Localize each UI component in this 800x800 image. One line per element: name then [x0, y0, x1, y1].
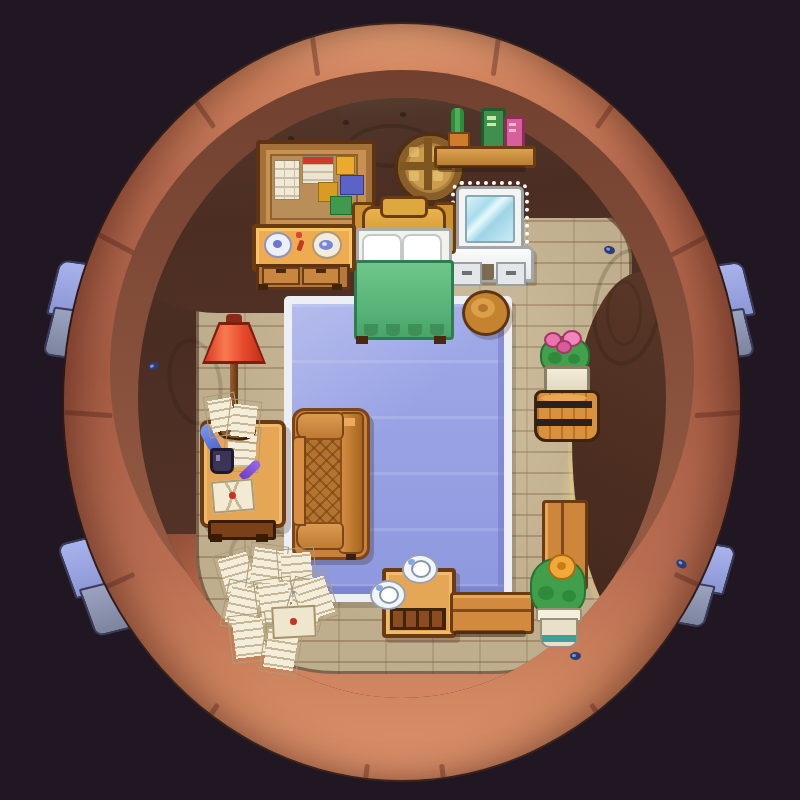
bug-glint: [150, 364, 155, 368]
dresser-foot: [332, 284, 342, 290]
rim-segment-line: [491, 28, 503, 76]
ink-glint: [216, 455, 220, 461]
vanity-mirror-frame: [456, 186, 524, 254]
stool[interactable]: [462, 290, 510, 336]
dresser-drawer: [302, 267, 340, 285]
stool-center: [478, 304, 488, 312]
teacup: [402, 554, 438, 584]
tea-table[interactable]: [382, 568, 448, 654]
bloom-center: [557, 562, 566, 570]
trinket-bowl: [312, 231, 342, 259]
rim-segment-line: [309, 28, 321, 76]
wreath-center: [273, 240, 282, 248]
bench-horizontal[interactable]: [450, 592, 530, 638]
leaf-shade: [562, 590, 576, 602]
bed-foot: [434, 336, 446, 344]
pot-teal-band: [542, 635, 576, 642]
blanket-scallop: [408, 324, 422, 336]
rim-segment-line: [670, 231, 715, 258]
cup-blue-glint: [376, 585, 383, 591]
barrel-planter[interactable]: [532, 332, 596, 436]
rivet-dot: [343, 120, 349, 125]
sticky-note-blue: [340, 175, 364, 195]
bench-seat: [450, 592, 534, 634]
barrel-hoop: [536, 419, 592, 426]
window-pane-glint: [409, 171, 419, 181]
barrel-hoop: [536, 401, 592, 408]
rim-segment-line: [185, 87, 217, 129]
bug-glint: [572, 654, 576, 657]
blanket-scallop: [430, 324, 444, 336]
wreath-plate: [264, 232, 292, 258]
lamp-shade: [205, 325, 263, 361]
shelf-board: [434, 146, 536, 168]
barrel: [534, 390, 600, 442]
cactus: [451, 108, 464, 133]
leaf-shade: [538, 586, 554, 600]
pinned-memo: [302, 156, 334, 184]
drawer-handle: [506, 271, 516, 275]
bug-glint: [606, 247, 611, 251]
wax-seal: [290, 618, 297, 625]
rim-segment-line: [595, 87, 627, 129]
book-stripe: [509, 123, 516, 126]
desk-foot: [256, 534, 268, 542]
yellow-plant[interactable]: [528, 552, 584, 648]
rim-segment-line: [359, 764, 370, 782]
drawer-handle: [462, 271, 472, 275]
vanity-mirror-glass: [465, 195, 515, 243]
red-trinket: [296, 232, 302, 238]
leaf-shade: [568, 354, 580, 364]
envelope: [271, 605, 317, 639]
bowl-glint: [322, 242, 327, 246]
bed-foot: [356, 336, 368, 344]
book-label: [487, 123, 496, 126]
book-stripe: [509, 129, 516, 132]
memo-red-header: [303, 157, 333, 164]
wax-seal: [229, 492, 237, 500]
sticky-note-yellow: [336, 156, 355, 175]
drawer-handle: [316, 269, 326, 273]
pinned-calendar: [274, 160, 300, 200]
bug-glint: [678, 561, 683, 566]
desk-foot: [210, 534, 222, 542]
letters-pile[interactable]: [214, 544, 348, 666]
rim-segment-line: [189, 703, 220, 746]
blanket-scallop: [386, 324, 400, 336]
bug[interactable]: [570, 652, 581, 660]
book-label: [487, 116, 496, 120]
white-pot: [540, 618, 578, 648]
armchair-front-lip: [292, 436, 306, 526]
back-glint: [343, 418, 355, 426]
teacup: [370, 580, 406, 610]
drawer-handle: [276, 269, 286, 273]
scene: [0, 0, 800, 800]
vanity-drawer: [496, 262, 526, 286]
wood-grain: [606, 280, 642, 346]
dresser[interactable]: [252, 224, 348, 290]
vanity-drawer: [452, 262, 482, 286]
headboard-knob: [380, 196, 428, 218]
leaf-shade: [548, 352, 562, 364]
vanity-kneehole: [480, 264, 494, 280]
rim-segment-line: [64, 410, 112, 418]
letter-sheet: [226, 398, 263, 444]
rim-segment-line: [589, 703, 620, 746]
shelf-shadow: [438, 166, 526, 172]
bed[interactable]: [350, 194, 452, 344]
ink-bottle: [210, 448, 234, 474]
tea-table-drawer: [390, 608, 446, 630]
rivet-dot: [400, 112, 406, 117]
vanity[interactable]: [446, 184, 528, 284]
cup-blue-glint: [408, 559, 415, 565]
armchair[interactable]: [292, 404, 366, 562]
wall-shelf[interactable]: [428, 104, 538, 174]
yellow-bloom: [548, 554, 576, 580]
rim-segment-line: [694, 410, 742, 418]
bench-shadow: [454, 630, 526, 637]
rim-segment-line: [439, 764, 450, 782]
blanket-scallop: [364, 324, 378, 336]
envelope: [211, 478, 256, 514]
window-pane-glint: [409, 147, 419, 157]
pink-bloom: [556, 340, 572, 354]
sticky-note-green: [330, 196, 352, 215]
dresser-drawer: [262, 267, 300, 285]
dresser-foot: [258, 284, 268, 290]
